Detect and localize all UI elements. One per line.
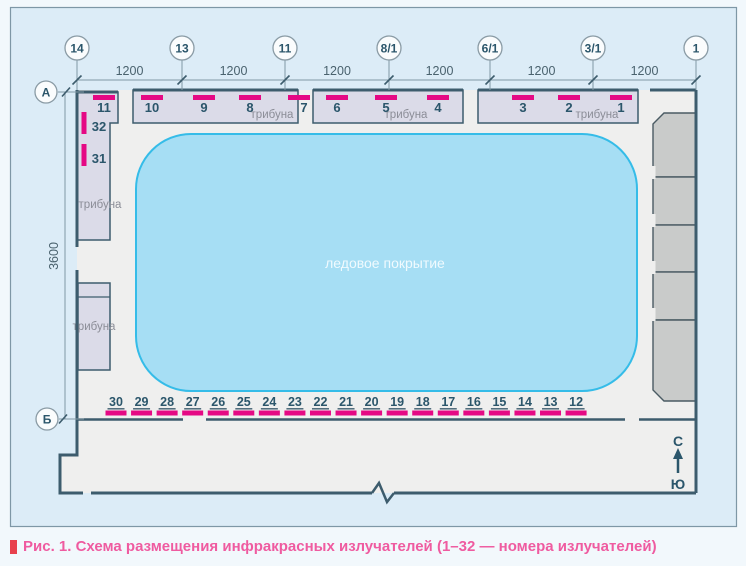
emitter-mark [566, 411, 587, 416]
emitter-number: 5 [382, 100, 389, 115]
emitter-number: 8 [246, 100, 253, 115]
emitter-mark [106, 411, 127, 416]
emitter-number: 15 [492, 395, 506, 409]
axis-label: 13 [175, 42, 189, 56]
axis-label: 1 [693, 42, 700, 56]
axis-label: 8/1 [381, 42, 398, 56]
emitter-number: 9 [200, 100, 207, 115]
emitter-number: 17 [441, 395, 455, 409]
emitter-mark [131, 411, 152, 416]
emitter-mark [208, 411, 229, 416]
compass-north-label: С [673, 433, 683, 449]
stair-gap [651, 214, 656, 227]
stair-gap [651, 166, 656, 179]
figure-page: ледовое покрытие трибунатрибунатрибунатр… [0, 0, 746, 566]
axis-label: А [42, 86, 51, 100]
dimension-label: 1200 [220, 64, 248, 78]
dimension-label: 1200 [426, 64, 454, 78]
emitter-number: 3 [519, 100, 526, 115]
emitter-number: 16 [467, 395, 481, 409]
emitter-number: 22 [314, 395, 328, 409]
stair-gap [651, 308, 656, 321]
tribune-label: трибуна [251, 109, 295, 121]
stair-gap [651, 261, 656, 274]
emitter-mark [438, 411, 459, 416]
tribune-label: трибуна [79, 199, 123, 211]
emitter-mark [284, 411, 305, 416]
emitter-mark [233, 411, 254, 416]
emitter-mark [540, 411, 561, 416]
rink-plan-diagram: ледовое покрытие трибунатрибунатрибунатр… [0, 0, 746, 532]
emitter-number: 32 [92, 119, 106, 134]
compass-south-label: Ю [671, 476, 685, 492]
emitter-number: 27 [186, 395, 200, 409]
emitter-mark [157, 411, 178, 416]
stair-block [653, 225, 696, 272]
stair-blocks [651, 113, 696, 401]
ice-label: ледовое покрытие [325, 255, 445, 271]
emitter-mark [387, 411, 408, 416]
axis-label: 6/1 [482, 42, 499, 56]
stair-block [653, 177, 696, 225]
stair-block [653, 320, 696, 401]
emitter-number: 21 [339, 395, 353, 409]
emitter-number: 29 [135, 395, 149, 409]
emitter-mark [310, 411, 331, 416]
emitter-mark [463, 411, 484, 416]
emitter-mark [182, 411, 203, 416]
axis-label: 11 [279, 42, 292, 56]
emitter-number: 23 [288, 395, 302, 409]
emitter-number: 20 [365, 395, 379, 409]
dimension-label: 1200 [631, 64, 659, 78]
dimension-label: 1200 [323, 64, 351, 78]
emitter-mark [336, 411, 357, 416]
tribune-label: трибуна [576, 109, 620, 121]
vertical-dimension: 3600 [47, 242, 61, 270]
dimension-label: 1200 [116, 64, 144, 78]
emitter-mark [489, 411, 510, 416]
stair-block [653, 113, 696, 177]
tribune-label: трибуна [385, 109, 429, 121]
emitter-mark [259, 411, 280, 416]
caption-text: Рис. 1. Схема размещения инфракрасных из… [23, 538, 657, 556]
emitter-number: 18 [416, 395, 430, 409]
emitter-mark [361, 411, 382, 416]
emitter-number: 19 [390, 395, 404, 409]
emitter-mark [82, 112, 87, 134]
emitter-number: 1 [617, 100, 624, 115]
axis-label: 3/1 [585, 42, 602, 56]
stair-block [653, 272, 696, 320]
emitter-number: 4 [434, 100, 442, 115]
emitter-number: 25 [237, 395, 251, 409]
figure-caption: Рис. 1. Схема размещения инфракрасных из… [10, 538, 657, 556]
emitter-number: 14 [518, 395, 532, 409]
tribune-label: трибуна [73, 321, 117, 333]
axis-label: 14 [70, 42, 84, 56]
emitter-number: 10 [145, 100, 159, 115]
emitter-number: 7 [300, 100, 307, 115]
emitter-number: 28 [160, 395, 174, 409]
emitter-number: 24 [262, 395, 276, 409]
emitter-mark [412, 411, 433, 416]
emitter-number: 2 [565, 100, 572, 115]
emitter-number: 13 [544, 395, 558, 409]
emitter-number: 30 [109, 395, 123, 409]
emitter-number: 11 [97, 100, 111, 115]
dimension-label: 1200 [528, 64, 556, 78]
emitter-mark [514, 411, 535, 416]
emitter-number: 12 [569, 395, 583, 409]
emitter-mark [82, 144, 87, 166]
caption-bullet-icon [10, 540, 17, 554]
emitter-number: 31 [92, 151, 106, 166]
emitter-number: 26 [211, 395, 225, 409]
emitter-number: 6 [333, 100, 340, 115]
axis-label: Б [43, 413, 52, 427]
